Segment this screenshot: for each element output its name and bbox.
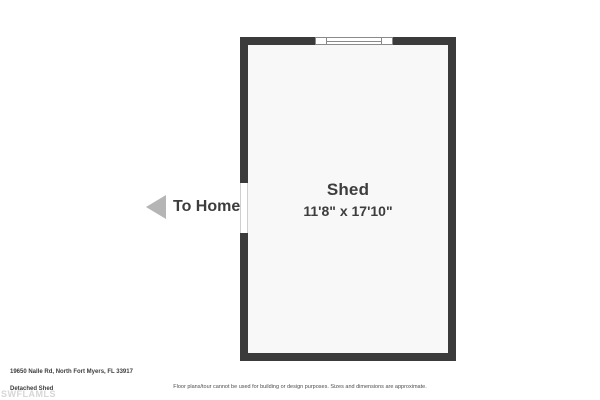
room-name: Shed [248,180,448,200]
room-dimensions: 11'8" x 17'10" [248,203,448,219]
disclaimer-text: Floor plans/tour cannot be used for buil… [0,384,600,390]
window-icon [315,37,393,45]
floorplan-canvas: Shed 11'8" x 17'10" To Home 19650 Nalle … [0,0,600,400]
to-home-callout: To Home [146,195,240,219]
window-end-left [316,38,327,44]
to-home-label: To Home [173,198,240,216]
window-glazing-line [327,38,381,44]
shed-room: Shed 11'8" x 17'10" [240,37,456,361]
window-end-right [381,38,392,44]
door-opening [240,183,248,233]
property-address: 19650 Nalle Rd, North Fort Myers, FL 339… [10,369,133,375]
room-label: Shed 11'8" x 17'10" [248,180,448,219]
left-triangle-arrow-icon [146,195,166,219]
